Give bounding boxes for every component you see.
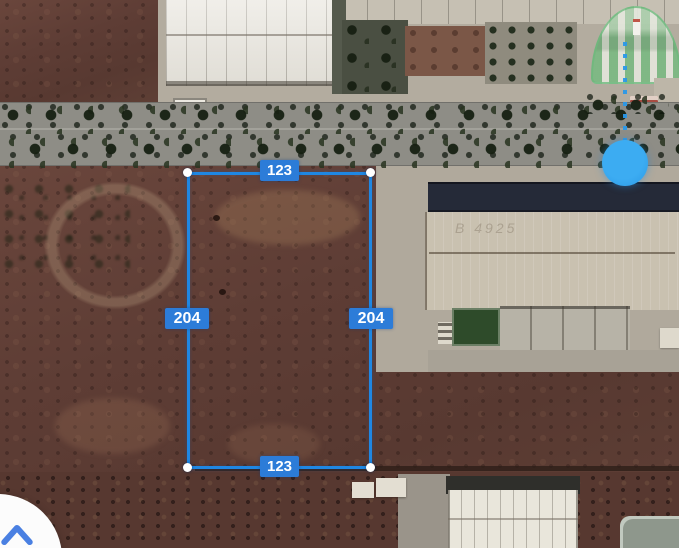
light-soil-patch bbox=[55, 398, 170, 454]
measurement-label-top: 123 bbox=[260, 160, 299, 181]
corner-handle-top-left[interactable] bbox=[183, 168, 192, 177]
location-dot-marker[interactable] bbox=[602, 140, 648, 186]
corner-handle-top-right[interactable] bbox=[366, 168, 375, 177]
roof-seam bbox=[166, 34, 334, 36]
small-building bbox=[376, 478, 406, 497]
small-building bbox=[352, 482, 374, 498]
warehouse-building-bottom bbox=[448, 490, 578, 548]
industrial-yard: B 4925 bbox=[376, 160, 679, 372]
chevron-up-icon bbox=[0, 522, 34, 548]
beige-warehouse-roof: B 4925 bbox=[425, 212, 679, 310]
small-white-building bbox=[660, 328, 679, 348]
corner-building bbox=[620, 516, 679, 548]
measured-parcel-rectangle[interactable] bbox=[187, 172, 372, 469]
navy-roof-building bbox=[428, 182, 679, 212]
tree-cluster bbox=[342, 20, 408, 94]
tree-row-south bbox=[8, 132, 679, 168]
green-roof-building bbox=[452, 308, 500, 346]
corner-handle-bottom-right[interactable] bbox=[366, 463, 375, 472]
measurement-label-right: 204 bbox=[349, 308, 393, 329]
field-track-arc bbox=[40, 178, 190, 313]
roof-text: B 4925 bbox=[455, 220, 517, 236]
tree-cluster bbox=[585, 92, 669, 114]
building-shadow-edge bbox=[166, 81, 334, 86]
service-road bbox=[428, 350, 679, 372]
marker-leader-dotted-line bbox=[623, 42, 627, 142]
dome-marking bbox=[633, 19, 640, 35]
orchard-grid bbox=[485, 22, 577, 84]
dirt-patch bbox=[405, 26, 487, 76]
roof-seam bbox=[448, 518, 578, 520]
arched-roof-building bbox=[500, 306, 630, 350]
warehouse-building-top bbox=[166, 0, 334, 86]
field-top-left bbox=[0, 0, 158, 110]
map-canvas[interactable]: B 4925 123 204 204 123 bbox=[0, 0, 679, 548]
tree-row-north bbox=[0, 102, 679, 134]
measurement-label-bottom: 123 bbox=[260, 456, 299, 477]
measurement-label-left: 204 bbox=[165, 308, 209, 329]
roof-seam bbox=[429, 252, 675, 254]
corner-handle-bottom-left[interactable] bbox=[183, 463, 192, 472]
